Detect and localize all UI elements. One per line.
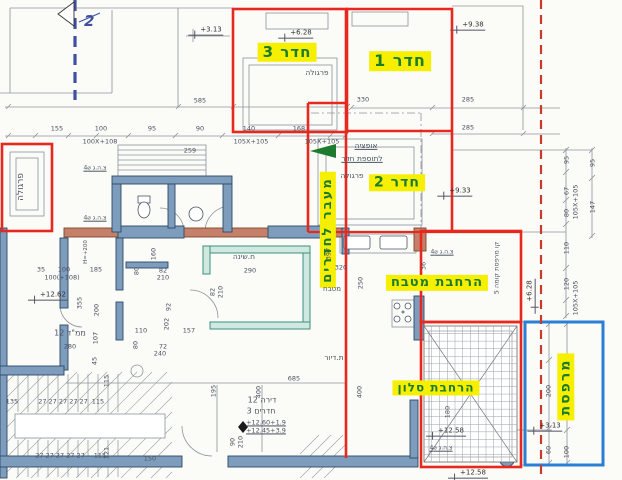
- annotation-label: צ.ה.ג ⌀4: [430, 250, 453, 257]
- level-marker: +9.38: [450, 22, 485, 31]
- dimension-label: 160: [150, 248, 157, 260]
- section-marker: 2: [84, 12, 94, 30]
- dimension-label: 210: [217, 286, 224, 298]
- dimension-label: 210: [237, 436, 244, 448]
- dimension-label: 140: [243, 125, 255, 132]
- fixtures: [138, 196, 411, 322]
- dimension-label: 60: [545, 446, 552, 454]
- dimension-label: 80: [133, 267, 140, 275]
- annotation-label: לתוספת חדר: [341, 155, 382, 163]
- dimension-label: 120: [563, 278, 570, 290]
- dimension-label: 280: [64, 343, 76, 350]
- dimension-label: 202: [163, 318, 170, 330]
- annotation-label: ממ"ד 12: [54, 330, 86, 339]
- dimension-label: 92: [165, 303, 172, 311]
- level-marker: +12.58: [426, 428, 466, 437]
- dimension-label: 110: [563, 242, 570, 254]
- dimension-label: 80: [563, 209, 570, 217]
- level-marker: +3.13: [527, 423, 562, 432]
- annotation-label: ח.שינה: [233, 253, 255, 261]
- dimension-label: 80: [132, 341, 139, 349]
- level-marker: +9.33: [437, 188, 472, 197]
- level-marker: +6.28: [278, 30, 313, 39]
- annotation-label: פרגולה: [17, 173, 27, 201]
- room-label: מרפסת: [557, 354, 574, 421]
- dimension-label: 180: [444, 406, 451, 418]
- dimension-label: 397: [325, 248, 332, 260]
- level-marker: +6.28: [527, 278, 536, 313]
- dimension-label: 320: [335, 264, 347, 271]
- dimension-label: 200: [545, 385, 552, 397]
- dimension-label: 67: [563, 187, 570, 195]
- floor-plan-canvas: 2 חדר 3חדר 1חדר 2מעבר לחדריםהרחבת מטבחהר…: [0, 0, 622, 480]
- option-arrow-icon: [310, 144, 336, 158]
- dimension-label: 90: [196, 125, 204, 132]
- dimension-label: 105X+105: [572, 185, 579, 220]
- dimension-label: 27 27 27 27 27: [38, 398, 88, 405]
- dimension-label: 105X+105: [305, 138, 340, 145]
- dimension-label: 100: [95, 125, 107, 132]
- dimension-label: 157: [183, 327, 195, 334]
- dimension-label: 330: [357, 96, 369, 103]
- room-label: הרחבת סלון: [392, 380, 479, 395]
- dimension-label: 95: [589, 159, 596, 167]
- level-marker: +3.13: [188, 27, 223, 36]
- annotation-label: פרגולה: [340, 172, 363, 180]
- room-label: חדר 2: [369, 174, 425, 191]
- room-label: הרחבת מטבח: [386, 275, 488, 291]
- dimension-label: +12.45+3.9: [246, 427, 286, 434]
- annotation-label: פרגולה: [305, 69, 328, 77]
- dimension-label: 95: [563, 156, 570, 164]
- annotation-label: צ.ה.ג ⌀4: [429, 446, 452, 453]
- dimension-label: 400: [255, 386, 262, 398]
- dimension-label: 685: [288, 375, 300, 382]
- dimension-label: 100(+108): [44, 274, 79, 281]
- annotation-label: צ.ה.ג ⌀4: [83, 166, 106, 173]
- dimension-label: 285: [462, 124, 474, 131]
- dimension-label: 150: [144, 455, 156, 462]
- dimension-label: 36: [420, 262, 427, 270]
- dimension-label: 105X+105: [234, 138, 269, 145]
- dimension-label: 45: [91, 357, 98, 365]
- dimension-label: 585: [194, 97, 206, 104]
- dimension-label: 115: [92, 398, 104, 405]
- dimension-label: 210: [157, 274, 169, 281]
- dimension-label: 200: [93, 304, 100, 316]
- dimension-label: 27 27 27 27 27: [35, 452, 85, 459]
- dimension-label: 135: [6, 398, 18, 405]
- dimension-label: 155: [51, 125, 63, 132]
- dimension-label: 290: [244, 267, 256, 274]
- dimension-label: 115: [103, 375, 110, 387]
- dimension-label: 168: [293, 125, 305, 132]
- annotation-label: אופציה: [355, 142, 378, 150]
- level-marker: +12.62: [28, 292, 68, 301]
- dimension-label: 185: [90, 266, 102, 273]
- dimension-label: 250: [357, 277, 364, 289]
- section-cut: 2: [58, 0, 100, 100]
- annotation-label: צ.ה.ג ⌀4: [83, 216, 106, 223]
- section-arrow-icon: [58, 2, 74, 26]
- dimension-label: 100X+108: [83, 138, 118, 145]
- dimension-label: 195: [210, 385, 217, 397]
- stair-landing: [15, 414, 165, 438]
- dimension-label: 400: [356, 386, 363, 398]
- room-label: חדר 3: [258, 43, 317, 62]
- dimension-label: 285: [462, 96, 474, 103]
- annotation-label: H=+200: [83, 240, 89, 264]
- dimension-label: 355: [76, 297, 83, 309]
- dimension-label: 72: [159, 343, 167, 350]
- room-label: חדר 1: [369, 51, 431, 71]
- annotation-label: מטבח: [323, 286, 341, 294]
- dimension-label: 105X+105: [572, 281, 579, 316]
- dimension-label: 100: [563, 446, 570, 458]
- level-marker: +12.58: [448, 470, 488, 479]
- dimension-label: 110: [135, 327, 147, 334]
- dimension-label: 147: [589, 201, 596, 213]
- annotation-label: קו מרפסת קומה 5: [493, 242, 500, 294]
- room-label: מעבר לחדרים: [320, 172, 336, 288]
- dimension-label: 259: [184, 147, 196, 154]
- dimension-label: 115: [94, 452, 106, 459]
- dimension-label: 240: [154, 350, 166, 357]
- dimension-label: 95: [148, 125, 156, 132]
- dimension-label: 107: [92, 332, 99, 344]
- annotation-label: ת.דיור: [324, 354, 343, 362]
- annotation-label: 3 חדרים: [247, 408, 276, 417]
